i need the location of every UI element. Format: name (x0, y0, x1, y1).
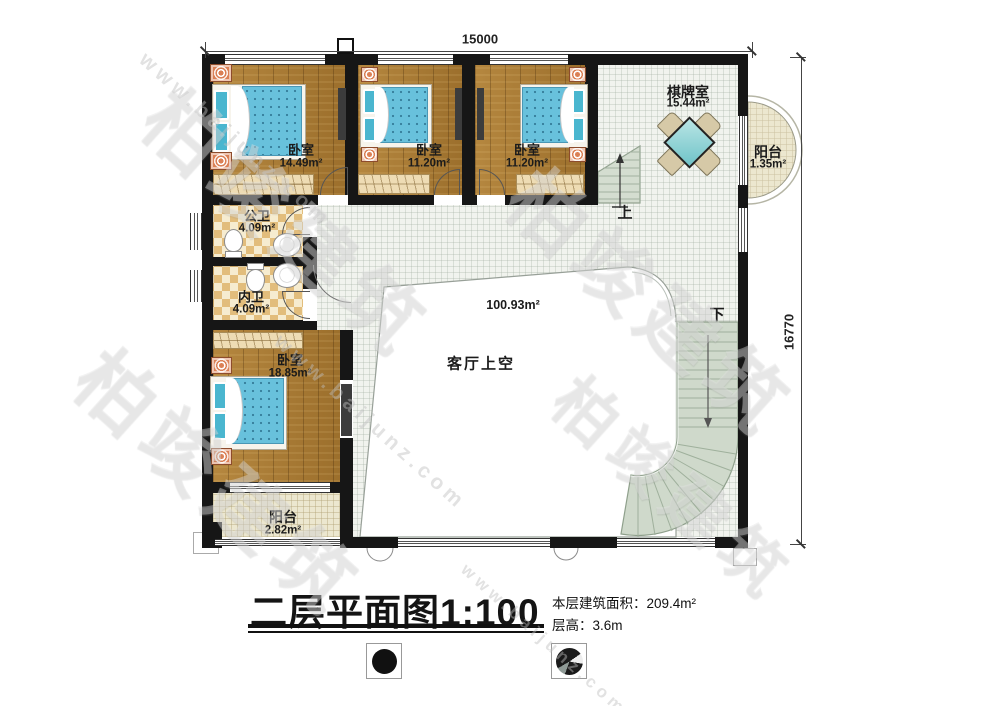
stair-down-label: 下 (709, 308, 724, 323)
title-underline-thin (248, 631, 544, 633)
bedroom3-label: 卧室 (514, 144, 540, 157)
dim-height-label: 16770 (782, 314, 797, 350)
door-gap-bed3 (477, 195, 505, 205)
bedroom3-area: 11.20m² (506, 158, 548, 170)
legend-box-circle (366, 643, 402, 679)
bedroom2-area: 11.20m² (408, 158, 450, 170)
bed1-nightstand-bottom (210, 152, 232, 170)
floor-plan-page: 卧室 14.49m² 卧室 11.20m² 卧室 11.20m² 棋牌室 15.… (0, 0, 1000, 706)
legend-dot-icon (372, 649, 397, 674)
bedroom2-label: 卧室 (416, 144, 442, 157)
bedroom4-area: 18.85m² (269, 368, 312, 380)
bed1-dark-panel (338, 88, 346, 140)
bedroom4-label: 卧室 (277, 354, 303, 367)
window-bed2 (378, 54, 453, 65)
right-balcony-label: 阳台 (754, 145, 782, 159)
bath1-sink (273, 233, 301, 257)
bath2-sink (273, 263, 301, 288)
bath1-toilet-tank (225, 251, 242, 258)
floor-area-info: 本层建筑面积：209.4m² (552, 592, 696, 612)
door-gap-bed1 (318, 195, 348, 205)
sliding-door-right-balcony (739, 116, 748, 185)
window-bath2 (190, 270, 202, 302)
bed2-nightstand-top (361, 67, 378, 82)
door-gap-bed2 (434, 195, 462, 205)
wall-right-2 (738, 185, 748, 208)
bed2-wardrobe (358, 174, 430, 194)
bedroom1-label: 卧室 (288, 144, 314, 157)
public-bath-label: 公卫 (244, 210, 270, 223)
bottom-balcony-label: 阳台 (269, 510, 297, 524)
bed3-nightstand-top (569, 67, 586, 82)
living-void-area: 100.93m² (486, 299, 540, 312)
north-compass-icon (556, 648, 583, 675)
bed4-pillow-1 (213, 382, 227, 410)
wall-bedrooms-bottom (202, 195, 598, 205)
window-bath1 (190, 213, 202, 250)
bed4-wardrobe (213, 332, 303, 349)
wall-bottom-2 (550, 537, 617, 548)
dim-line-right (801, 57, 802, 545)
private-bath-label: 内卫 (238, 291, 264, 304)
wall-bath2-bottom (202, 320, 317, 330)
bed2-pillow-2 (363, 117, 376, 142)
floor-area-label: 本层建筑面积： (552, 596, 647, 611)
railing-bottom-1 (398, 538, 550, 547)
bed2-nightstand-bottom (361, 147, 378, 162)
bed4-door-panel (341, 384, 352, 436)
bed3-pillow-2 (572, 117, 585, 142)
wall-right-3 (738, 252, 748, 548)
floor-height-value: 3.6m (593, 618, 623, 633)
bedroom1-area: 14.49m² (280, 158, 323, 170)
floor-height-label: 层高： (552, 618, 593, 633)
stair-up-label: 上 (617, 206, 632, 221)
bed3-dark-panel (477, 88, 484, 140)
bed4-nightstand-bottom (211, 448, 232, 465)
title-underline-thick (248, 624, 544, 628)
chess-room-area: 15.44m² (667, 98, 710, 110)
wall-right-1 (738, 54, 748, 116)
porch-arcs (367, 548, 578, 561)
dim-line-top (205, 51, 752, 52)
bottom-balcony-edge (215, 539, 340, 546)
bed1-wardrobe (213, 174, 314, 195)
window-chess-right (738, 208, 748, 252)
bed3-wardrobe (516, 174, 584, 194)
private-bath-area: 4.09m² (233, 304, 269, 316)
bed1-nightstand-top (210, 64, 232, 82)
floor-height-info: 层高：3.6m (552, 614, 623, 634)
living-void-label: 客厅上空 (447, 357, 515, 372)
floor-area-value: 209.4m² (647, 596, 697, 611)
wall-bottom-3 (715, 537, 748, 548)
wall-divider-bed2-bed3 (462, 54, 475, 195)
dim-width-label: 15000 (462, 32, 498, 47)
bed3-nightstand-bottom (569, 147, 586, 162)
bottom-balcony-area: 2.82m² (265, 525, 301, 537)
right-balcony-area: 1.35m² (750, 159, 786, 171)
bed2-dark-panel (455, 88, 462, 140)
public-bath-area: 4.09m² (239, 223, 275, 235)
bed4-nightstand-top (211, 357, 232, 374)
sliding-door-bed4-balcony (230, 482, 330, 493)
railing-bottom-2 (617, 538, 715, 547)
bed3-pillow-1 (572, 89, 585, 114)
bed1-pillow-1 (214, 90, 229, 120)
bed1-pillow-2 (214, 122, 229, 152)
wall-bottom-1 (340, 537, 398, 548)
bed4-pillow-2 (213, 412, 227, 440)
bed2-pillow-1 (363, 89, 376, 114)
window-bed3 (490, 54, 568, 65)
window-bed1 (225, 54, 325, 65)
footing-right (733, 548, 757, 566)
legend-box-compass (551, 643, 587, 679)
